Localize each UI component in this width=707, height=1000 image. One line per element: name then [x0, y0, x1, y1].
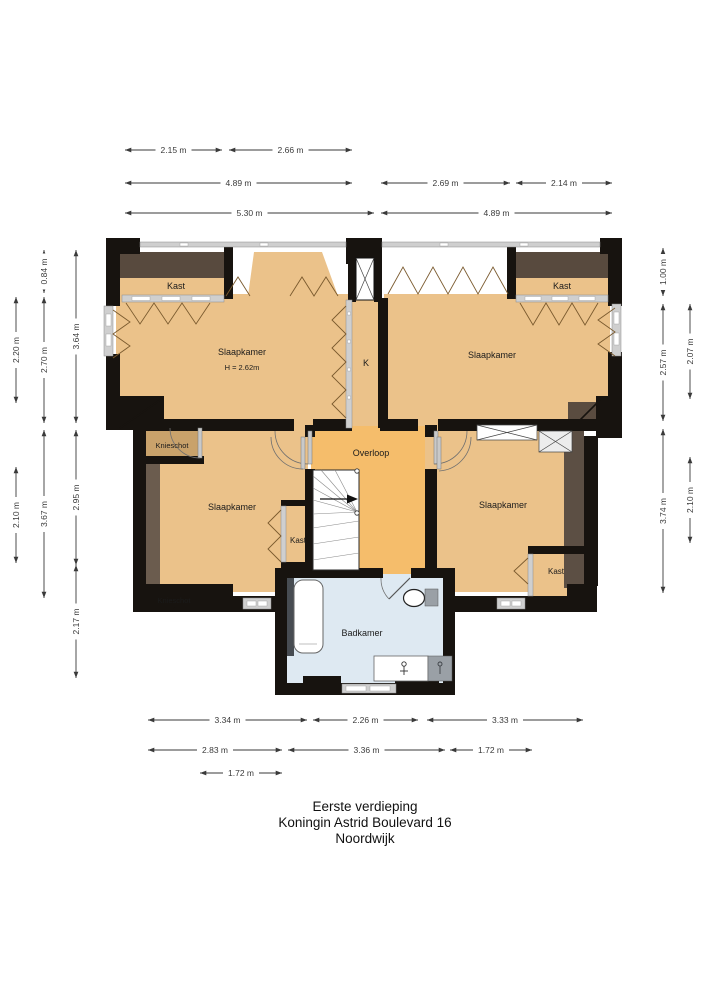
kast-tl-dark-strip [118, 252, 226, 278]
dim-right-2-57: 2.57 m [658, 350, 668, 376]
dim-right-1-00: 1.00 m [658, 259, 668, 285]
dim-top-2-66: 2.66 m [278, 145, 304, 155]
knieschot-bottom-label: Knieschot [158, 596, 192, 605]
door-leaf-br [437, 437, 441, 469]
dim-left-3-64: 3.64 m [71, 324, 81, 350]
dim-left-2-10: 2.10 m [11, 502, 21, 528]
dormer-floor [248, 252, 338, 296]
dimensions-right: 1.00 m 2.57 m 3.74 m 2.07 m 2.10 m [658, 248, 696, 593]
kast-mid-floor [284, 504, 308, 566]
dim-top-5-30: 5.30 m [237, 208, 263, 218]
knee-band-left [146, 460, 160, 586]
dim-left-3-67: 3.67 m [39, 501, 49, 527]
dim-top-2-14: 2.14 m [551, 178, 577, 188]
kast-mid-door [281, 506, 286, 562]
knieschot-top-label: Knieschot [156, 441, 190, 450]
k-label: K [363, 358, 369, 368]
dim-bottom-2-26: 2.26 m [353, 715, 379, 725]
shower-panel [287, 578, 294, 656]
door-leaf-bl [301, 437, 305, 469]
dim-top-2-69: 2.69 m [433, 178, 459, 188]
dim-bottom-3-36: 3.36 m [354, 745, 380, 755]
kast-tr-label: Kast [553, 281, 572, 291]
plan-title: Eerste verdieping Koningin Astrid Boulev… [278, 799, 451, 846]
slaapkamer-tr-label: Slaapkamer [468, 350, 516, 360]
dim-bottom-3-34: 3.34 m [215, 715, 241, 725]
dim-top-4-89a: 4.89 m [226, 178, 252, 188]
knieschot-door-leaf [198, 428, 202, 458]
floorplan-page: Slaapkamer H = 2.62m Slaapkamer Slaapkam… [0, 0, 707, 1000]
dim-right-2-10: 2.10 m [685, 487, 695, 513]
dim-top-2-15: 2.15 m [161, 145, 187, 155]
dim-bottom-2-83: 2.83 m [202, 745, 228, 755]
dimensions-left: 2.20 m 2.10 m 0.84 m 2.70 m 3.67 m 3.64 … [11, 250, 82, 678]
dim-left-0-84: 0.84 m [39, 259, 49, 285]
dimensions-top: 2.15 m 2.66 m 4.89 m 2.69 m 2.14 m 5.30 … [125, 145, 612, 219]
title-city: Noordwijk [335, 831, 395, 846]
dim-bottom-1-72a: 1.72 m [478, 745, 504, 755]
kast-br-door [528, 554, 533, 596]
staircase [313, 469, 359, 570]
title-address: Koningin Astrid Boulevard 16 [278, 815, 451, 830]
dimensions-bottom: 3.34 m 2.26 m 3.33 m 2.83 m 3.36 m 1.72 … [148, 715, 583, 779]
title-floor: Eerste verdieping [312, 799, 417, 814]
bathtub-icon [294, 580, 323, 653]
dim-top-4-89b: 4.89 m [484, 208, 510, 218]
dim-bottom-1-72b: 1.72 m [228, 768, 254, 778]
slaapkamer-br-label: Slaapkamer [479, 500, 527, 510]
sink-icon [374, 656, 428, 681]
dim-left-2-20: 2.20 m [11, 337, 21, 363]
k-glazed-wall [346, 300, 352, 428]
kast-mid-label: Kast [290, 536, 307, 545]
ceiling-height-note: H = 2.62m [225, 363, 260, 372]
slaapkamer-tl-label: Slaapkamer [218, 347, 266, 357]
dim-left-2-17: 2.17 m [71, 609, 81, 635]
kast-tl-label: Kast [167, 281, 186, 291]
dim-bottom-3-33: 3.33 m [492, 715, 518, 725]
left-wall-window [104, 306, 113, 356]
overloop-label: Overloop [353, 448, 390, 458]
dim-left-2-95: 2.95 m [71, 485, 81, 511]
dim-left-2-70: 2.70 m [39, 347, 49, 373]
dim-right-3-74: 3.74 m [658, 498, 668, 524]
toilet-cistern [425, 589, 438, 606]
toilet-icon [404, 590, 425, 607]
door-leaf-tl [308, 431, 312, 464]
kast-br-label: Kast [548, 567, 565, 576]
dim-right-2-07: 2.07 m [685, 339, 695, 365]
slaapkamer-bl-label: Slaapkamer [208, 502, 256, 512]
floorplan-drawing: Slaapkamer H = 2.62m Slaapkamer Slaapkam… [0, 0, 707, 1000]
badkamer-label: Badkamer [341, 628, 382, 638]
kast-tr-dark-strip [514, 252, 610, 278]
right-wall-window [612, 304, 621, 356]
